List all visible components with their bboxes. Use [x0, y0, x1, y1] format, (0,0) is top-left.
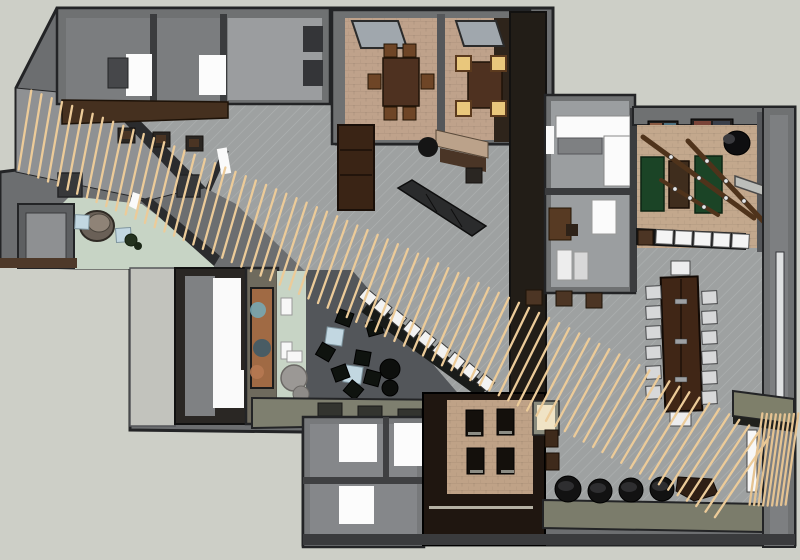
- lounge-table-blue-a: [325, 327, 344, 346]
- dining2-chair-bottom-2: [491, 101, 506, 116]
- floorplan-svg: [0, 0, 800, 560]
- communal-chair-left-1: [646, 286, 662, 300]
- platform-seat-strip-3: [470, 470, 483, 473]
- communal-chair-right-4: [702, 351, 718, 365]
- black-cylinder-top: [723, 134, 735, 144]
- communal-chair-head: [671, 261, 690, 275]
- dining2-chair-bottom-1: [456, 101, 471, 116]
- kitchenette-steps: [558, 138, 602, 154]
- dining1-chair-top-2: [403, 44, 416, 57]
- south-room-white-b: [394, 423, 422, 466]
- hall-stool-b: [556, 291, 572, 306]
- nw-shelf-a: [303, 26, 323, 52]
- platform-seat-strip-2: [499, 431, 512, 434]
- platform-seat-strip-4: [501, 470, 514, 473]
- office-white-pair-a: [557, 250, 572, 280]
- beam-joint-1: [669, 155, 673, 159]
- communal-chair-right-5: [702, 371, 718, 385]
- art-blob-rust: [250, 365, 264, 379]
- art-blob-navy: [253, 339, 271, 357]
- pouf-3-top: [621, 482, 637, 492]
- green-table-a: [641, 157, 664, 211]
- white-stool-4: [713, 233, 731, 248]
- kitchenette-counter-top: [556, 116, 630, 138]
- floorplan-render: [0, 0, 800, 560]
- nw-door-a: [126, 54, 152, 96]
- side-cabinet-b: [546, 453, 559, 470]
- south-room-white-a: [339, 424, 377, 462]
- communal-chair-right-3: [702, 331, 718, 345]
- spine-door-white: [546, 126, 554, 154]
- nw-shelf-b: [303, 60, 323, 86]
- south-rooms-divider: [303, 477, 424, 484]
- beam-joint-7: [673, 187, 677, 191]
- communal-chair-right-1: [702, 291, 718, 305]
- nw-desk: [108, 58, 128, 88]
- communal-chair-left-4: [646, 346, 662, 360]
- beam-joint-2: [697, 176, 701, 180]
- beam-joint-4: [705, 159, 709, 163]
- south-room-white-c: [339, 486, 374, 524]
- scene-layers: [0, 0, 800, 560]
- left-sill: [0, 258, 77, 268]
- beam-joint-8: [688, 196, 692, 200]
- west-roof-panel: [130, 268, 175, 426]
- office-chair: [566, 224, 578, 236]
- dining1-chair-left: [368, 74, 381, 89]
- office-white-pair-b: [574, 252, 588, 280]
- kitchen-stool-top-c: [189, 139, 199, 147]
- entry-seat-a: [75, 215, 90, 230]
- side-cabinet-a: [545, 430, 558, 447]
- pouf-2-top: [590, 483, 606, 493]
- office-white-table: [592, 200, 616, 234]
- round-stool-black: [418, 137, 438, 157]
- platform-seat-strip-1: [468, 432, 481, 435]
- platform-light-line: [429, 506, 533, 509]
- east-window-slot: [776, 252, 784, 397]
- white-stool-2: [675, 231, 693, 246]
- skylight-1: [352, 21, 407, 48]
- south-olive-band: [543, 500, 763, 532]
- dining1-chair-bottom-1: [384, 107, 397, 120]
- dining1-chair-top-1: [384, 44, 397, 57]
- white-stool-3: [694, 232, 712, 247]
- kitchenette-counter-side: [604, 136, 630, 186]
- lounge-pouf-a: [380, 359, 400, 379]
- kitchenette-divider: [545, 188, 635, 195]
- communal-chair-left-3: [646, 326, 662, 340]
- dining2-chair-top-2: [491, 56, 506, 71]
- corridor-floor: [185, 276, 215, 416]
- beam-joint-9: [702, 205, 706, 209]
- table-clamp-a: [675, 299, 687, 304]
- pouf-1-top: [558, 481, 574, 491]
- east-divider-wall: [630, 108, 637, 292]
- lounge-pouf-b: [382, 380, 398, 396]
- dining2-chair-top-1: [456, 56, 471, 71]
- skylight-2: [456, 21, 504, 46]
- hall-stool-a: [526, 290, 542, 305]
- communal-chair-right-2: [702, 311, 718, 325]
- table-clamp-b: [675, 339, 687, 344]
- corridor-light-strip2: [230, 370, 244, 408]
- entry-plant-b: [134, 242, 142, 250]
- nw-door-b: [199, 55, 226, 95]
- left-window: [26, 213, 66, 261]
- beam-joint-5: [724, 179, 728, 183]
- dining-divider-wall: [437, 14, 445, 142]
- south-wall-band: [303, 534, 795, 545]
- lounge-mini-bench-a: [281, 298, 292, 315]
- service-side-table: [466, 168, 482, 183]
- bar-shelf-wall: [338, 125, 374, 210]
- terrace-table-a: [318, 403, 342, 416]
- dining1-chair-right: [421, 74, 434, 89]
- south-rooms-vdivider: [383, 417, 389, 479]
- lounge-chair-4: [354, 350, 371, 366]
- hall-stool-c: [586, 293, 602, 308]
- art-blob-teal: [250, 302, 266, 318]
- stool-row-end-brown: [638, 230, 653, 245]
- table-clamp-c: [675, 377, 687, 382]
- beam-joint-6: [742, 199, 746, 203]
- platform-brick-overlay: [447, 400, 533, 494]
- reception-desk-top: [88, 214, 110, 232]
- beam-joint-3: [724, 196, 728, 200]
- communal-chair-left-2: [646, 306, 662, 320]
- dining1-chair-bottom-2: [403, 107, 416, 120]
- white-stool-5: [732, 234, 750, 249]
- white-stool-1: [656, 230, 674, 245]
- dining-table-1: [383, 58, 419, 106]
- lounge-mini-bench-c: [287, 351, 302, 362]
